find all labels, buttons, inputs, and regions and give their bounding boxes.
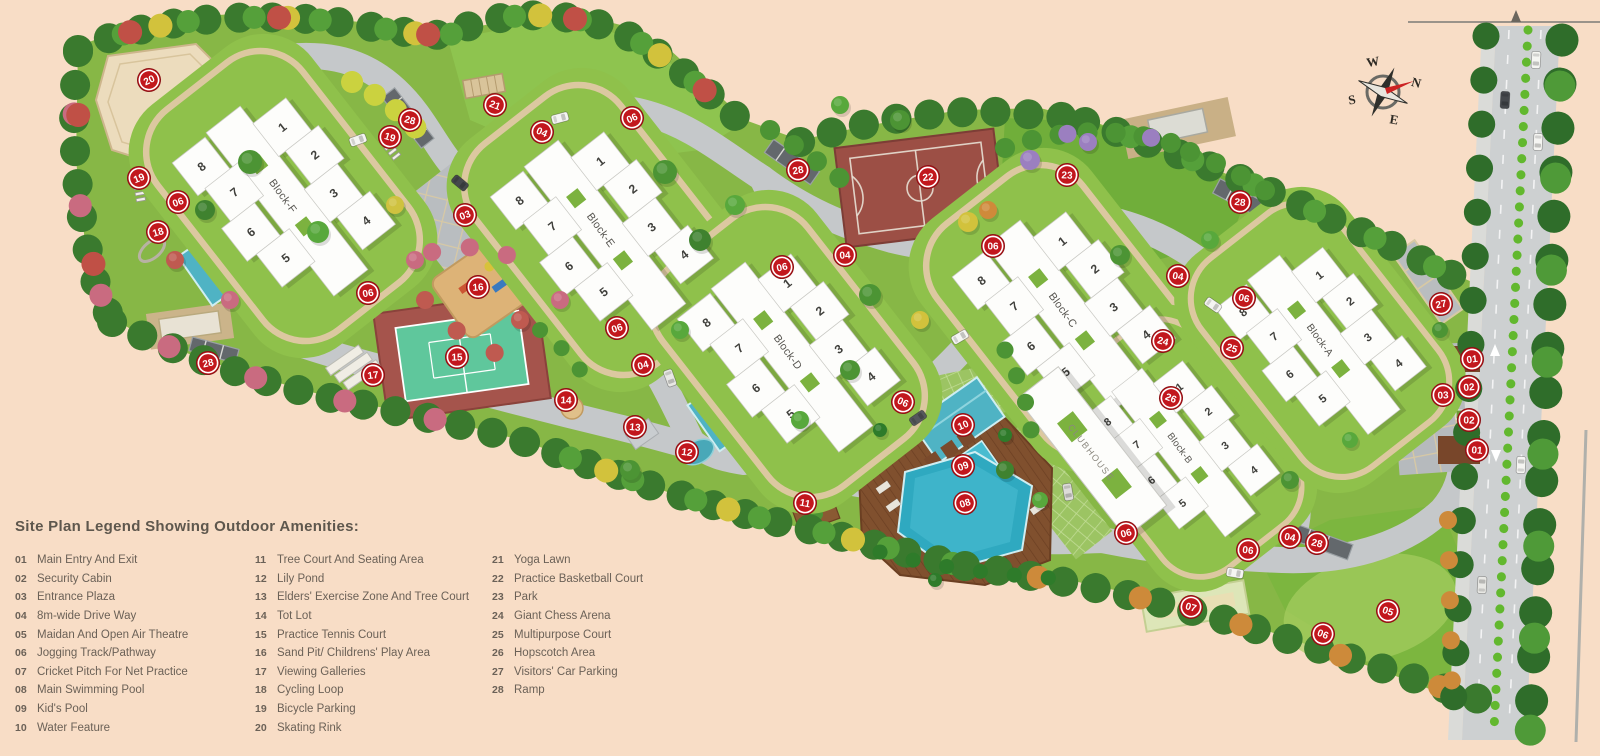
amenity-marker-02: 02 xyxy=(1457,408,1480,431)
site-plan-svg: 87651234Block-F87651234Block-E87651234Bl… xyxy=(0,0,1600,756)
amenity-marker-15: 15 xyxy=(445,345,468,368)
legend-item-number: 14 xyxy=(255,610,277,622)
legend-item-number: 25 xyxy=(492,629,514,641)
legend-item-label: Sand Pit/ Childrens' Play Area xyxy=(277,647,430,659)
legend-item-number: 13 xyxy=(255,591,277,603)
compass-s: S xyxy=(1347,91,1357,107)
legend-item-number: 07 xyxy=(15,666,37,678)
compass: W N S E xyxy=(1347,53,1423,128)
marker-number: 16 xyxy=(472,282,484,294)
legend-item-label: Security Cabin xyxy=(37,573,112,585)
marker-number: 04 xyxy=(1171,271,1184,284)
legend-item-label: Tot Lot xyxy=(277,610,312,622)
legend-item-number: 11 xyxy=(255,554,277,566)
marker-number: 13 xyxy=(629,422,641,434)
legend-item-28: 28Ramp xyxy=(492,681,643,700)
legend-item-number: 22 xyxy=(492,573,514,585)
compass-w: W xyxy=(1365,53,1380,70)
car xyxy=(1531,51,1541,68)
legend-item-27: 27Visitors' Car Parking xyxy=(492,663,643,682)
road-end-pole xyxy=(1511,10,1521,22)
legend-item-number: 12 xyxy=(255,573,277,585)
legend-item-06: 06Jogging Track/Pathway xyxy=(15,644,188,663)
legend-item-10: 10Water Feature xyxy=(15,718,188,737)
legend-item-11: 11Tree Court And Seating Area xyxy=(255,551,469,570)
legend-item-08: 08Main Swimming Pool xyxy=(15,681,188,700)
legend-item-17: 17Viewing Galleries xyxy=(255,663,469,682)
legend-item-label: Cricket Pitch For Net Practice xyxy=(37,666,188,678)
legend-item-number: 24 xyxy=(492,610,514,622)
marker-number: 14 xyxy=(560,395,572,406)
legend-item-13: 13Elders' Exercise Zone And Tree Court xyxy=(255,588,469,607)
marker-number: 23 xyxy=(1061,170,1073,182)
legend-item-number: 08 xyxy=(15,684,37,696)
legend-item-label: Main Swimming Pool xyxy=(37,684,144,696)
legend-item-number: 03 xyxy=(15,591,37,603)
legend-item-label: Tree Court And Seating Area xyxy=(277,554,424,566)
legend-item-19: 19Bicycle Parking xyxy=(255,700,469,719)
legend-item-21: 21Yoga Lawn xyxy=(492,551,643,570)
legend-item-09: 09Kid's Pool xyxy=(15,700,188,719)
legend-item-number: 18 xyxy=(255,684,277,696)
legend-item-label: Entrance Plaza xyxy=(37,591,115,603)
legend-item-label: Kid's Pool xyxy=(37,703,88,715)
car xyxy=(1500,91,1510,108)
compass-n: N xyxy=(1410,74,1424,91)
legend-item-number: 17 xyxy=(255,666,277,678)
legend-item-number: 06 xyxy=(15,647,37,659)
marker-number: 01 xyxy=(1466,354,1479,367)
legend-item-number: 10 xyxy=(15,722,37,734)
legend-item-number: 16 xyxy=(255,647,277,659)
legend-item-label: Skating Rink xyxy=(277,722,342,734)
amenity-marker-06: 06 xyxy=(982,235,1005,258)
legend-item-14: 14Tot Lot xyxy=(255,607,469,626)
legend-title: Site Plan Legend Showing Outdoor Ameniti… xyxy=(15,518,359,535)
legend-item-18: 18Cycling Loop xyxy=(255,681,469,700)
legend-item-25: 25Multipurpose Court xyxy=(492,625,643,644)
legend-item-24: 24Giant Chess Arena xyxy=(492,607,643,626)
legend-item-label: 8m-wide Drive Way xyxy=(37,610,136,622)
legend-item-label: Park xyxy=(514,591,538,603)
legend-item-label: Jogging Track/Pathway xyxy=(37,647,156,659)
legend-item-number: 15 xyxy=(255,629,277,641)
legend-column-1: 01Main Entry And Exit02Security Cabin03E… xyxy=(15,551,188,737)
legend-item-number: 26 xyxy=(492,647,514,659)
legend-item-26: 26Hopscotch Area xyxy=(492,644,643,663)
legend-item-label: Water Feature xyxy=(37,722,110,734)
marker-number: 06 xyxy=(987,242,999,253)
marker-number: 01 xyxy=(1471,445,1483,457)
legend-item-07: 07Cricket Pitch For Net Practice xyxy=(15,663,188,682)
legend-item-label: Maidan And Open Air Theatre xyxy=(37,629,188,641)
amenity-marker-04: 04 xyxy=(833,243,857,267)
legend-item-number: 05 xyxy=(15,629,37,641)
legend-item-label: Bicycle Parking xyxy=(277,703,356,715)
legend-item-number: 23 xyxy=(492,591,514,603)
marker-number: 04 xyxy=(839,250,851,262)
marker-number: 12 xyxy=(681,447,694,460)
legend-item-number: 09 xyxy=(15,703,37,715)
legend-item-label: Elders' Exercise Zone And Tree Court xyxy=(277,591,469,603)
marker-number: 28 xyxy=(1234,197,1247,209)
legend-item-03: 03Entrance Plaza xyxy=(15,588,188,607)
legend-item-label: Lily Pond xyxy=(277,573,324,585)
marker-number: 02 xyxy=(1463,415,1475,426)
legend-item-label: Viewing Galleries xyxy=(277,666,366,678)
legend-item-15: 15Practice Tennis Court xyxy=(255,625,469,644)
compound-wall xyxy=(1576,430,1586,742)
legend-item-label: Visitors' Car Parking xyxy=(514,666,618,678)
legend-item-12: 12Lily Pond xyxy=(255,570,469,589)
site-plan-image: 87651234Block-F87651234Block-E87651234Bl… xyxy=(0,0,1600,756)
legend-item-02: 02Security Cabin xyxy=(15,570,188,589)
legend-item-number: 02 xyxy=(15,573,37,585)
legend-item-label: Yoga Lawn xyxy=(514,554,571,566)
legend-item-label: Multipurpose Court xyxy=(514,629,611,641)
marker-number: 17 xyxy=(367,370,380,382)
amenity-marker-14: 14 xyxy=(554,388,578,412)
legend-item-number: 01 xyxy=(15,554,37,566)
marker-number: 02 xyxy=(1463,382,1475,394)
marker-number: 15 xyxy=(451,352,463,363)
legend-item-22: 22Practice Basketball Court xyxy=(492,570,643,589)
legend-item-number: 28 xyxy=(492,684,514,696)
car xyxy=(1516,456,1526,473)
marker-number: 03 xyxy=(1437,390,1449,401)
legend-column-2: 11Tree Court And Seating Area12Lily Pond… xyxy=(255,551,469,737)
legend-item-05: 05Maidan And Open Air Theatre xyxy=(15,625,188,644)
compass-e: E xyxy=(1389,111,1400,127)
legend-item-16: 16Sand Pit/ Childrens' Play Area xyxy=(255,644,469,663)
tree xyxy=(831,96,851,117)
amenity-marker-03: 03 xyxy=(1431,383,1455,407)
marker-number: 06 xyxy=(1242,545,1255,557)
legend-item-04: 048m-wide Drive Way xyxy=(15,607,188,626)
legend-item-label: Cycling Loop xyxy=(277,684,343,696)
legend-item-number: 19 xyxy=(255,703,277,715)
amenity-marker-23: 23 xyxy=(1055,163,1079,187)
legend-column-3: 21Yoga Lawn22Practice Basketball Court23… xyxy=(492,551,643,700)
legend-item-01: 01Main Entry And Exit xyxy=(15,551,188,570)
legend-item-23: 23Park xyxy=(492,588,643,607)
legend-item-20: 20Skating Rink xyxy=(255,718,469,737)
legend-item-label: Practice Tennis Court xyxy=(277,629,386,641)
car xyxy=(1477,576,1487,593)
marker-number: 22 xyxy=(922,172,935,184)
legend-item-number: 20 xyxy=(255,722,277,734)
legend-item-label: Practice Basketball Court xyxy=(514,573,643,585)
legend-item-number: 21 xyxy=(492,554,514,566)
legend-item-label: Hopscotch Area xyxy=(514,647,595,659)
legend-item-label: Main Entry And Exit xyxy=(37,554,137,566)
legend-item-label: Giant Chess Arena xyxy=(514,610,611,622)
legend-item-label: Ramp xyxy=(514,684,545,696)
car xyxy=(1533,133,1543,150)
legend-item-number: 27 xyxy=(492,666,514,678)
legend-item-number: 04 xyxy=(15,610,37,622)
marker-number: 28 xyxy=(792,165,805,178)
